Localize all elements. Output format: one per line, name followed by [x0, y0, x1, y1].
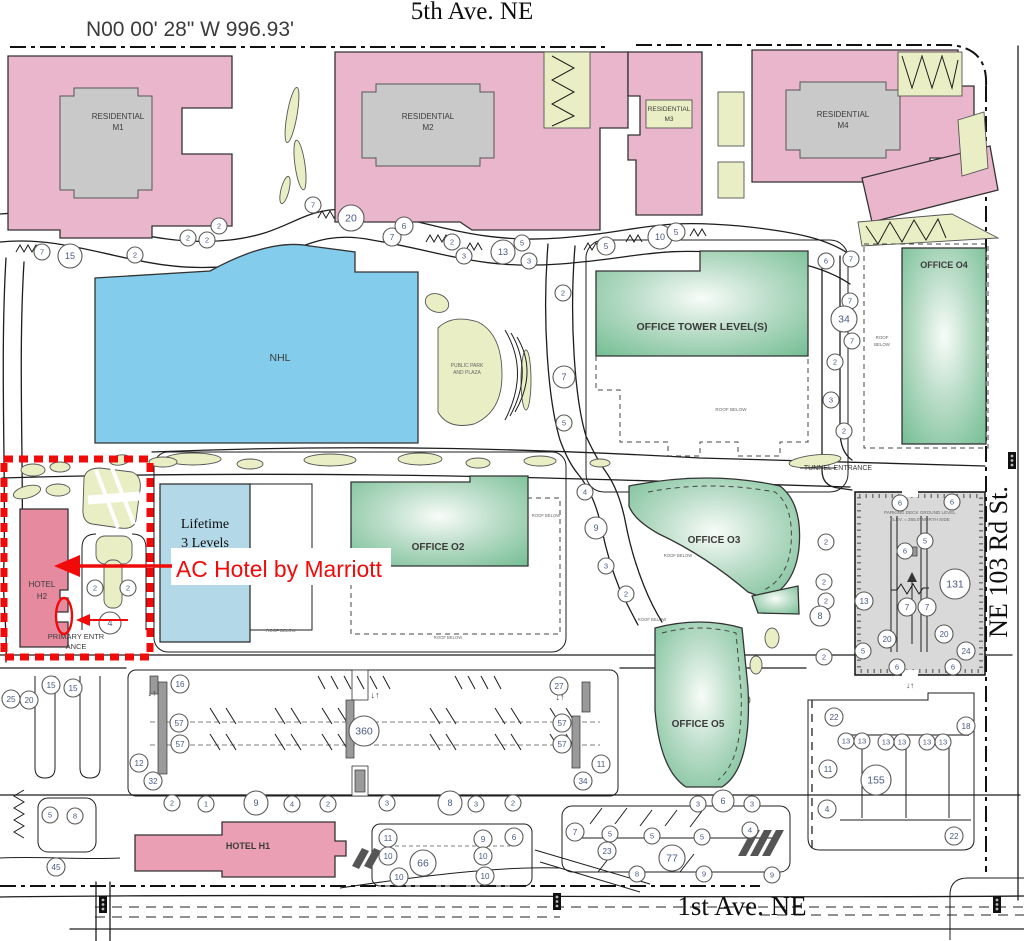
residential-m3-number: M3 — [664, 116, 673, 123]
count-badge-label: 6 — [402, 222, 407, 231]
count-badge-label: 9 — [253, 798, 258, 808]
count-badge-label: 5 — [861, 647, 865, 656]
count-badge-label: 9 — [481, 835, 486, 844]
count-badge-label: 2 — [822, 653, 826, 662]
hotel-h2-label-line2: H2 — [37, 592, 48, 601]
roof-below-note-o5: ROOF BELOW — [638, 617, 666, 622]
count-badge-label: 57 — [557, 719, 567, 728]
primary-entrance-label-line1: PRIMARY ENTR — [48, 632, 105, 641]
street-label-1st-ave: 1st Ave. NE — [677, 891, 806, 921]
count-badge-label: 32 — [148, 777, 158, 786]
count-badge-label: 6 — [898, 499, 902, 508]
count-badge-label: 57 — [174, 719, 184, 728]
count-badge-label: 2 — [205, 236, 209, 245]
count-badge-label: 5 — [923, 537, 927, 546]
count-badge-label: 2 — [842, 427, 846, 436]
tunnel-entrance-label: TUNNEL ENTRANCE — [804, 465, 873, 472]
roof-below-note-o4-line1: ROOF — [876, 335, 889, 340]
count-badge-label: 6 — [951, 663, 955, 672]
nhl-label: NHL — [269, 352, 290, 364]
count-badge-label: 2 — [326, 800, 330, 809]
count-badge-label: 2 — [170, 799, 174, 808]
count-badge-label: 5 — [520, 239, 524, 248]
count-badge-label: 8 — [817, 611, 822, 621]
count-badge-label: 57 — [175, 740, 185, 749]
office-o2-label: OFFICE O2 — [412, 542, 465, 553]
count-badge-label: 20 — [345, 213, 357, 225]
count-badge-label: 13 — [939, 738, 947, 747]
count-badge-label: 13 — [882, 738, 890, 747]
count-badge-label: 5 — [608, 830, 612, 839]
count-badge-label: 8 — [447, 798, 452, 808]
count-badge-label: 7 — [848, 297, 852, 306]
count-badge-label: 10 — [478, 852, 488, 861]
count-badge-label: 5 — [604, 242, 609, 251]
count-badge-label: 45 — [51, 863, 61, 872]
residential-m4-label: RESIDENTIAL — [817, 110, 870, 119]
count-badge-label: 22 — [829, 713, 839, 722]
count-badge-label: 8 — [635, 870, 639, 879]
count-badge-label: 3 — [385, 799, 389, 808]
count-badge-label: 11 — [384, 834, 393, 843]
count-badge-label: 4 — [748, 826, 752, 835]
count-badge-label: 2 — [217, 222, 221, 231]
count-badge-label: 3 — [829, 396, 833, 405]
count-badge-label: 15 — [46, 681, 56, 690]
count-badge-label: 24 — [961, 647, 971, 656]
residential-m2-number: M2 — [422, 123, 434, 132]
count-badge-label: 11 — [824, 765, 833, 774]
count-badge-label: 2 — [126, 584, 130, 593]
residential-m2-label: RESIDENTIAL — [402, 112, 455, 121]
count-badge-label: 3 — [750, 800, 754, 809]
lifetime-label-line1: Lifetime — [181, 517, 229, 532]
primary-entrance-label-line2: ANCE — [66, 642, 87, 651]
count-badge-label: 15 — [65, 251, 75, 261]
count-badge-label: 20 — [882, 635, 892, 644]
count-badge-label: 2 — [833, 358, 837, 367]
count-badge-label: 22 — [949, 832, 959, 841]
public-park-label-line2: AND PLAZA — [453, 370, 481, 376]
count-badge-label: 7 — [390, 233, 395, 242]
count-badge-label: 6 — [903, 547, 907, 556]
public-park-label-line1: PUBLIC PARK — [451, 363, 484, 369]
count-badge-label: 9 — [593, 523, 598, 533]
office-o4-label: OFFICE O4 — [920, 260, 968, 270]
count-badge-label: 7 — [40, 248, 44, 257]
roof-below-note-tower: ROOF BELOW — [715, 407, 747, 412]
count-badge-label: 12 — [134, 759, 144, 768]
site-plan-map: ↓↑ ↓↑ ↓↑ ↓↑ — [0, 0, 1024, 941]
count-badge-label: 6 — [950, 498, 954, 507]
count-badge-label: 20 — [939, 630, 949, 639]
count-badge-label: 5 — [48, 811, 52, 820]
count-badge-label: 77 — [666, 853, 678, 865]
residential-m3-label: RESIDENTIAL — [648, 106, 691, 113]
street-label-5th-ave: 5th Ave. NE — [411, 0, 533, 25]
count-badge-label: 3 — [527, 257, 531, 266]
count-badge-label: 2 — [186, 234, 190, 243]
count-badge-label: 6 — [895, 663, 899, 672]
count-badge-label: 5 — [562, 419, 566, 428]
count-badge-label: 8 — [73, 812, 77, 821]
count-badge-label: 155 — [867, 775, 885, 787]
count-badge-label: 6 — [824, 257, 828, 266]
count-badge-label: 7 — [849, 255, 853, 264]
count-badge-label: 66 — [417, 858, 429, 870]
hotel-h2-building — [20, 509, 68, 647]
count-badge-label: 5 — [650, 832, 654, 841]
office-tower-label: OFFICE TOWER LEVEL(S) — [636, 321, 767, 333]
callout-text: AC Hotel by Marriott — [176, 556, 383, 582]
count-badge-label: 7 — [850, 337, 854, 346]
count-badge-label: 10 — [394, 873, 404, 882]
count-badge-label: 4 — [583, 488, 587, 497]
count-badge-label: 15 — [68, 684, 78, 693]
roof-below-note-o2-right: ROOF BELOW — [532, 513, 560, 518]
count-badge-label: 7 — [573, 828, 578, 837]
count-badge-label: 34 — [578, 777, 588, 786]
count-badge-label: 3 — [474, 800, 478, 809]
count-badge-label: 2 — [824, 597, 828, 606]
count-badge-label: 3 — [462, 252, 466, 261]
hotel-h2-label-line1: HOTEL — [29, 580, 56, 589]
count-badge-label: 13 — [842, 737, 850, 746]
count-badge-label: 13 — [898, 738, 906, 747]
count-badge-label: 9 — [770, 871, 774, 880]
count-badge-label: 13 — [923, 738, 931, 747]
count-badge-label: 4 — [825, 805, 830, 814]
count-badge-label: 7 — [905, 603, 910, 612]
count-badge-label: 13 — [498, 247, 508, 257]
count-badge-label: 3 — [696, 800, 700, 809]
garage-arrows: ↓↑ — [371, 690, 380, 700]
office-o5-label: OFFICE O5 — [672, 719, 725, 730]
roof-below-note-o3: ROOF BELOW — [664, 553, 692, 558]
count-badge-label: 131 — [946, 579, 964, 591]
count-badge-label: 3 — [604, 562, 608, 571]
count-badge-label: 23 — [602, 847, 612, 856]
count-badge-label: 360 — [355, 726, 373, 738]
count-badge-label: 11 — [597, 760, 606, 769]
roof-below-note-o2-bottom: ROOF BELOW — [434, 635, 462, 640]
count-badge-label: 9 — [702, 870, 706, 879]
count-badge-label: 5 — [674, 228, 679, 237]
site-plan-page: ↓↑ ↓↑ ↓↑ ↓↑ — [0, 0, 1024, 941]
count-badge-label: 6 — [512, 833, 517, 842]
survey-bearing-label: N00 00' 28" W 996.93' — [86, 18, 294, 41]
count-badge-label: 34 — [838, 314, 850, 326]
parking-deck-label-line2: ELEV. = 265.0' NORTH SIDE — [890, 517, 950, 522]
count-badge-label: 27 — [554, 682, 564, 691]
count-badge-label: 7 — [311, 201, 315, 210]
roof-below-note-lifetime: ROOF BELOW — [266, 628, 297, 633]
count-badge-label: 2 — [133, 251, 137, 260]
count-badge-label: 4 — [290, 800, 294, 809]
count-badge-label: 18 — [961, 722, 971, 731]
count-badge-label: 6 — [720, 796, 725, 806]
count-badge-label: 2 — [822, 578, 826, 587]
residential-m1-number: M1 — [112, 123, 124, 132]
count-badge-label: 2 — [824, 538, 828, 547]
count-badge-label: 2 — [511, 799, 515, 808]
hotel-h1-label: HOTEL H1 — [226, 841, 270, 851]
roof-below-note-o4-line2: BELOW — [874, 342, 891, 347]
office-o3-label: OFFICE O3 — [688, 535, 741, 546]
count-badge-label: 10 — [480, 872, 490, 881]
count-badge-label: 2 — [93, 584, 97, 593]
count-badge-label: 16 — [175, 680, 185, 689]
office-o5-building — [655, 622, 748, 787]
count-badge-label: 10 — [383, 852, 393, 861]
count-badge-label: 25 — [6, 695, 16, 704]
count-badge-label: 57 — [557, 740, 567, 749]
count-badge-label: 7 — [925, 603, 930, 612]
residential-m4-number: M4 — [837, 121, 849, 130]
residential-m1-label: RESIDENTIAL — [92, 112, 145, 121]
count-badge-label: 20 — [24, 696, 34, 705]
count-badge-label: 5 — [700, 833, 704, 842]
count-badge-label: 13 — [858, 737, 866, 746]
street-label-ne-103rd: NE 103 Rd St. — [984, 486, 1013, 638]
parking-deck-label-line1: PARKING DECK GROUND LEVEL — [884, 510, 956, 515]
count-badge-label: 2 — [561, 289, 565, 298]
count-badge-label: 7 — [561, 372, 566, 382]
count-badge-label: 13 — [859, 597, 869, 606]
garage-arrows: ↓↑ — [148, 688, 157, 698]
count-badge-label: 1 — [204, 800, 208, 809]
deck-arrows: ↓↑ — [906, 681, 914, 690]
count-badge-label: 10 — [655, 232, 665, 242]
residential-m2-block — [335, 52, 628, 230]
count-badge-label: 2 — [450, 238, 454, 247]
count-badge-label: 2 — [624, 590, 628, 599]
